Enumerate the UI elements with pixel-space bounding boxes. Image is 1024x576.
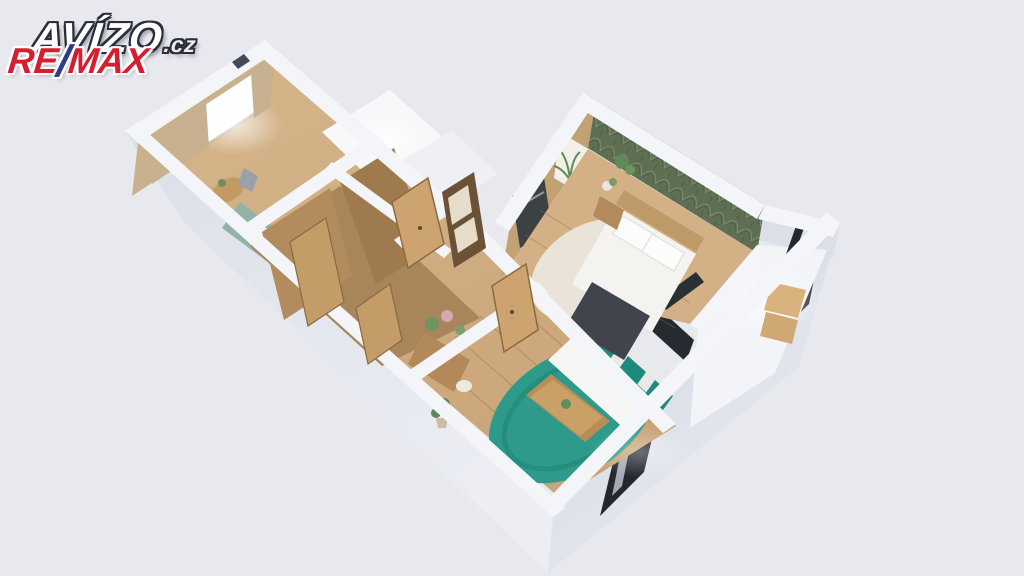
nightstand-flowers bbox=[609, 178, 617, 186]
storage-basket bbox=[456, 380, 472, 392]
avizo-logo-tld: .cz bbox=[163, 32, 198, 57]
remax-logo-max: MAX bbox=[66, 40, 150, 81]
listing-image: AVÍZO.cz RE/MAX bbox=[0, 0, 1024, 576]
remax-logo: RE/MAX bbox=[6, 40, 151, 82]
door-handle bbox=[510, 310, 514, 314]
sideboard-flowers bbox=[441, 310, 453, 322]
remax-logo-re: RE bbox=[6, 40, 60, 81]
bedroom-plant bbox=[625, 165, 635, 175]
floorplan-render bbox=[0, 0, 1024, 576]
coffee-table-plant bbox=[561, 399, 571, 409]
sideboard-plant bbox=[425, 317, 439, 331]
table-plant bbox=[218, 179, 226, 187]
door-handle bbox=[418, 226, 422, 230]
